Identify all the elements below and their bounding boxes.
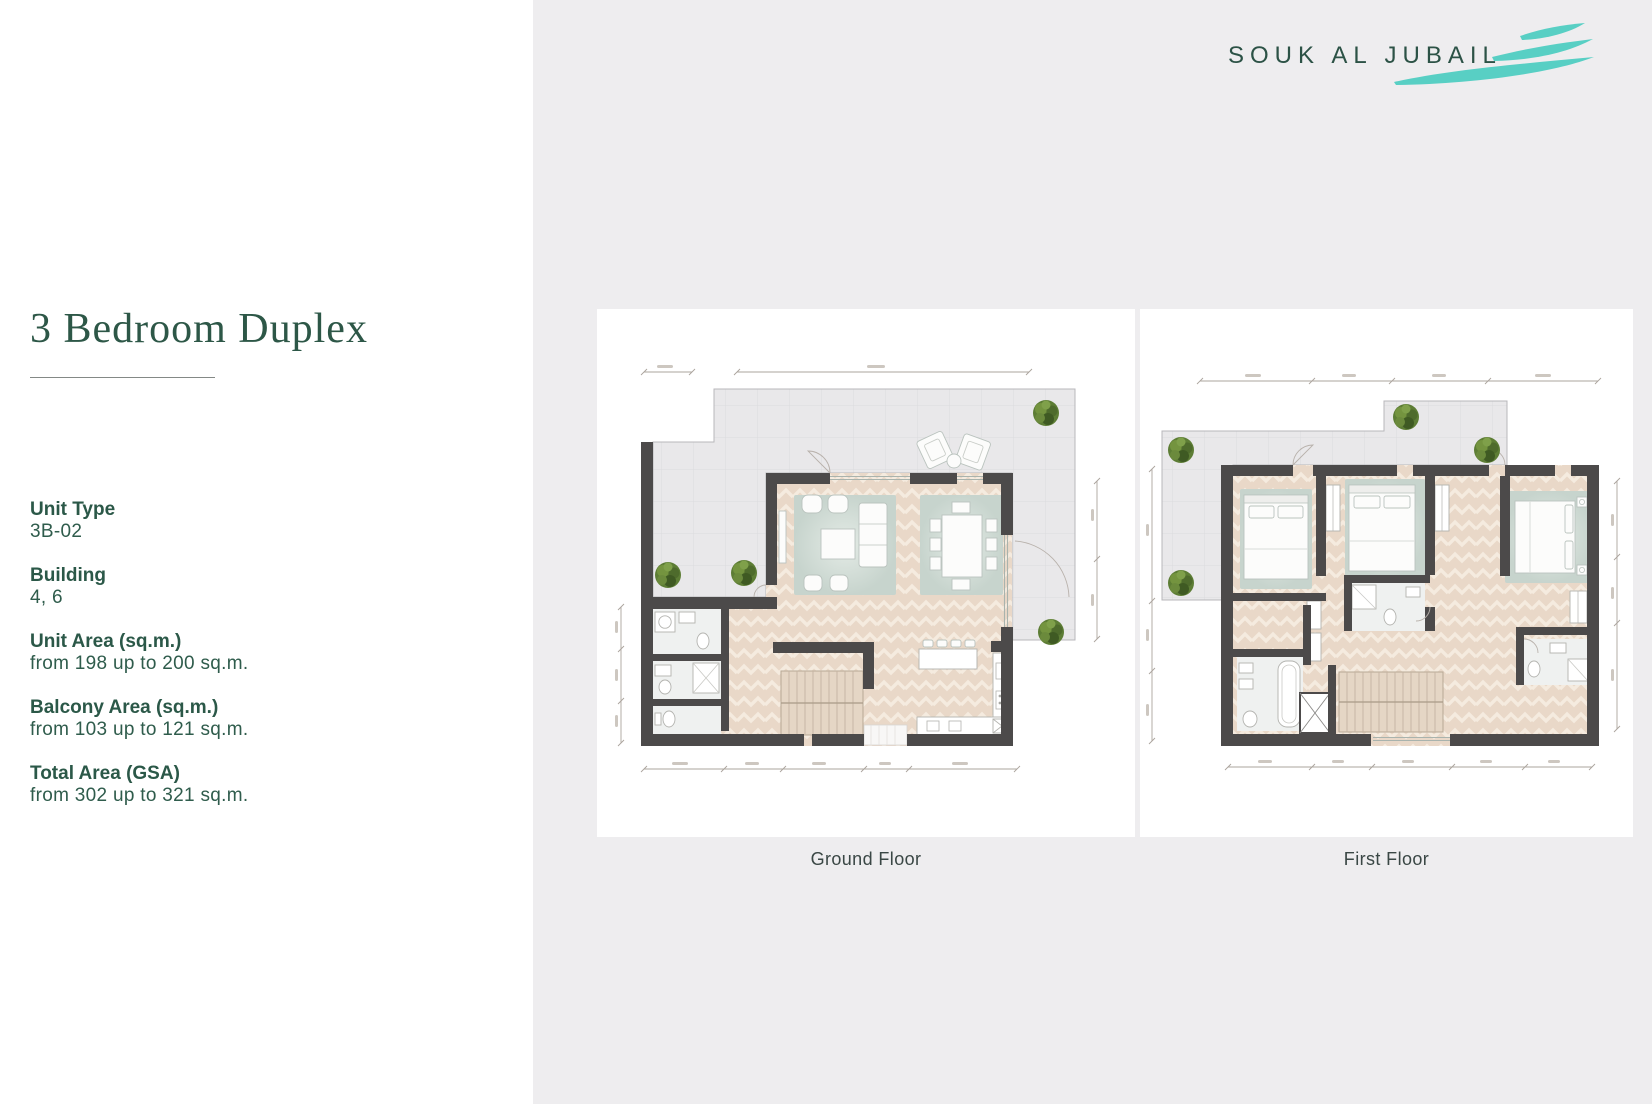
ground-floor-plan-image bbox=[597, 309, 1135, 837]
detail-value: from 198 up to 200 sq.m. bbox=[30, 653, 490, 675]
bedroom-3 bbox=[1505, 491, 1593, 583]
ground-floor-label: Ground Floor bbox=[597, 849, 1135, 870]
unit-details: Unit Type 3B-02 Building 4, 6 Unit Area … bbox=[30, 499, 490, 829]
page-title: 3 Bedroom Duplex bbox=[30, 305, 368, 353]
ground-bathrooms bbox=[653, 609, 721, 734]
dining-table bbox=[942, 515, 982, 577]
detail-value: from 302 up to 321 sq.m. bbox=[30, 785, 490, 807]
kitchen-island bbox=[919, 649, 977, 669]
armchair bbox=[804, 575, 822, 591]
first-floor-label: First Floor bbox=[1140, 849, 1633, 870]
detail-value: 3B-02 bbox=[30, 521, 490, 543]
living-room bbox=[779, 495, 896, 595]
detail-value: from 103 up to 121 sq.m. bbox=[30, 719, 490, 741]
sofa bbox=[859, 503, 887, 567]
floor-plan-card-first bbox=[1140, 309, 1633, 837]
entry-porch bbox=[864, 725, 907, 745]
detail-balcony-area: Balcony Area (sq.m.) from 103 up to 121 … bbox=[30, 697, 490, 741]
detail-unit-type: Unit Type 3B-02 bbox=[30, 499, 490, 543]
coffee-table bbox=[821, 529, 855, 559]
first-floor-plan-image bbox=[1140, 309, 1633, 837]
armchair bbox=[802, 495, 822, 513]
detail-label: Unit Area (sq.m.) bbox=[30, 631, 490, 653]
detail-building: Building 4, 6 bbox=[30, 565, 490, 609]
detail-value: 4, 6 bbox=[30, 587, 490, 609]
stairs bbox=[781, 671, 863, 735]
detail-unit-area: Unit Area (sq.m.) from 198 up to 200 sq.… bbox=[30, 631, 490, 675]
armchair bbox=[830, 575, 848, 591]
floor-plan-card-ground bbox=[597, 309, 1135, 837]
stairs bbox=[1339, 672, 1443, 732]
title-underline bbox=[30, 377, 215, 378]
console-table bbox=[779, 511, 786, 563]
logo-waves-icon bbox=[1388, 22, 1600, 88]
armchair bbox=[828, 495, 848, 513]
elevator-shaft bbox=[1300, 693, 1330, 733]
detail-label: Total Area (GSA) bbox=[30, 763, 490, 785]
detail-label: Balcony Area (sq.m.) bbox=[30, 697, 490, 719]
bedroom-1 bbox=[1240, 489, 1312, 589]
side-table bbox=[947, 454, 961, 468]
detail-total-area: Total Area (GSA) from 302 up to 321 sq.m… bbox=[30, 763, 490, 807]
detail-label: Unit Type bbox=[30, 499, 490, 521]
detail-label: Building bbox=[30, 565, 490, 587]
dining-room bbox=[920, 495, 1003, 595]
bedroom-2 bbox=[1345, 479, 1425, 579]
